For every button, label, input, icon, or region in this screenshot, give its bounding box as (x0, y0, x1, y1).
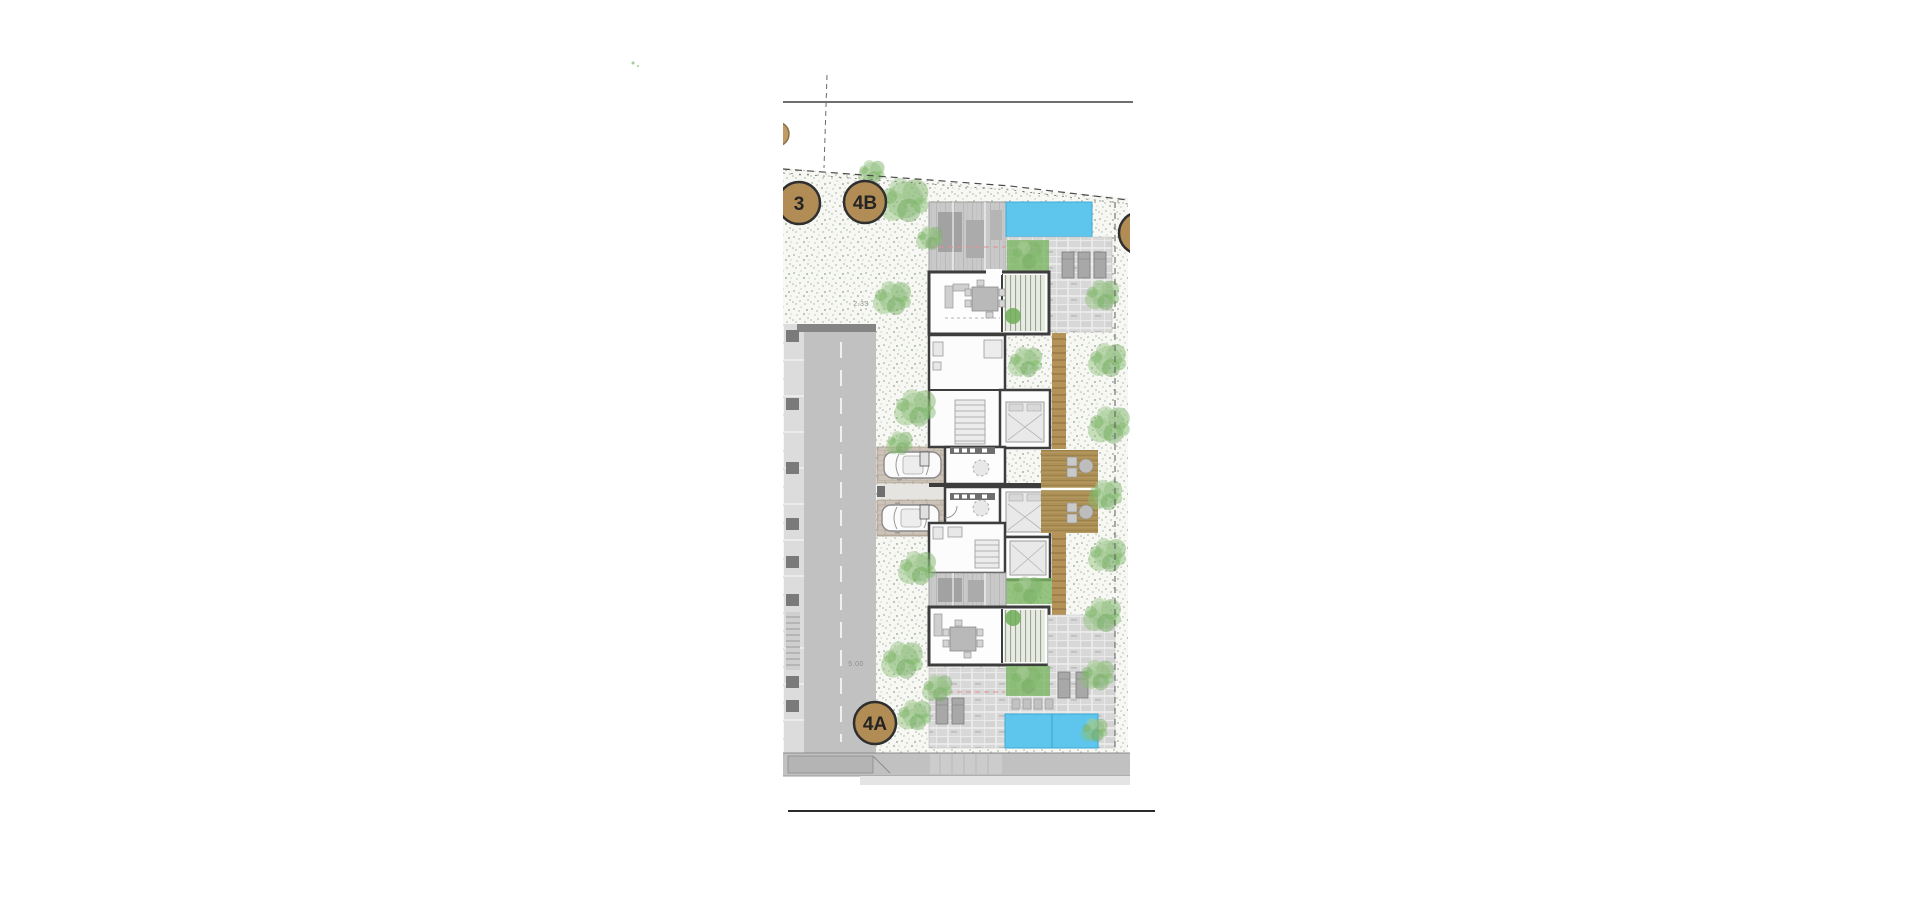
staircase-4a (975, 540, 999, 568)
plot-badge-3: 3 (778, 182, 820, 224)
plan-area: 3 4B 4A 2.33 5.00 (765, 122, 1161, 785)
basin (933, 362, 941, 370)
road-top-curb (797, 324, 876, 332)
plot-badge-4b-label: 4B (853, 193, 877, 214)
plot-badge-4a-label: 4A (863, 714, 888, 735)
plot-badge-4b: 4B (844, 181, 886, 223)
bed (1006, 492, 1044, 532)
wc (933, 527, 943, 539)
lower-sidewalk (860, 776, 1130, 785)
wc (933, 342, 943, 356)
round-table (973, 500, 989, 516)
dimension-label-road: 5.00 (848, 661, 864, 668)
deck-table (1079, 505, 1093, 519)
stray-leaf-mark (632, 62, 635, 65)
car-top (884, 450, 941, 481)
deck-table (1079, 459, 1093, 473)
dimension-label-top: 2.33 (853, 301, 869, 308)
entry-stoop-4b (920, 452, 929, 466)
site-plan-drawing: 3 4B 4A 2.33 5.00 (0, 0, 1920, 920)
staircase-4b (955, 400, 985, 444)
plot-badge-3-label: 3 (794, 194, 805, 215)
sofa (934, 614, 942, 636)
dining-table (972, 287, 998, 311)
sun-lounger (936, 698, 948, 724)
potted-plant (1005, 610, 1021, 626)
potted-plant (1005, 308, 1021, 324)
entry-stoop-4a (920, 505, 929, 519)
paved-apron (930, 754, 1002, 774)
gate-post (877, 486, 885, 497)
road-ramp (788, 756, 873, 773)
plot-badge-4a: 4A (854, 702, 896, 744)
round-table (973, 460, 989, 476)
site-plan-page: 3 4B 4A 2.33 5.00 (0, 0, 1920, 920)
dining-table (950, 627, 976, 651)
shower (984, 340, 1002, 358)
side-steps-4b (1052, 333, 1066, 449)
sun-lounger (1062, 252, 1074, 278)
timber-deck (1041, 450, 1098, 533)
bed (1006, 402, 1044, 442)
basin (948, 527, 962, 537)
pool-4b (1006, 202, 1092, 237)
